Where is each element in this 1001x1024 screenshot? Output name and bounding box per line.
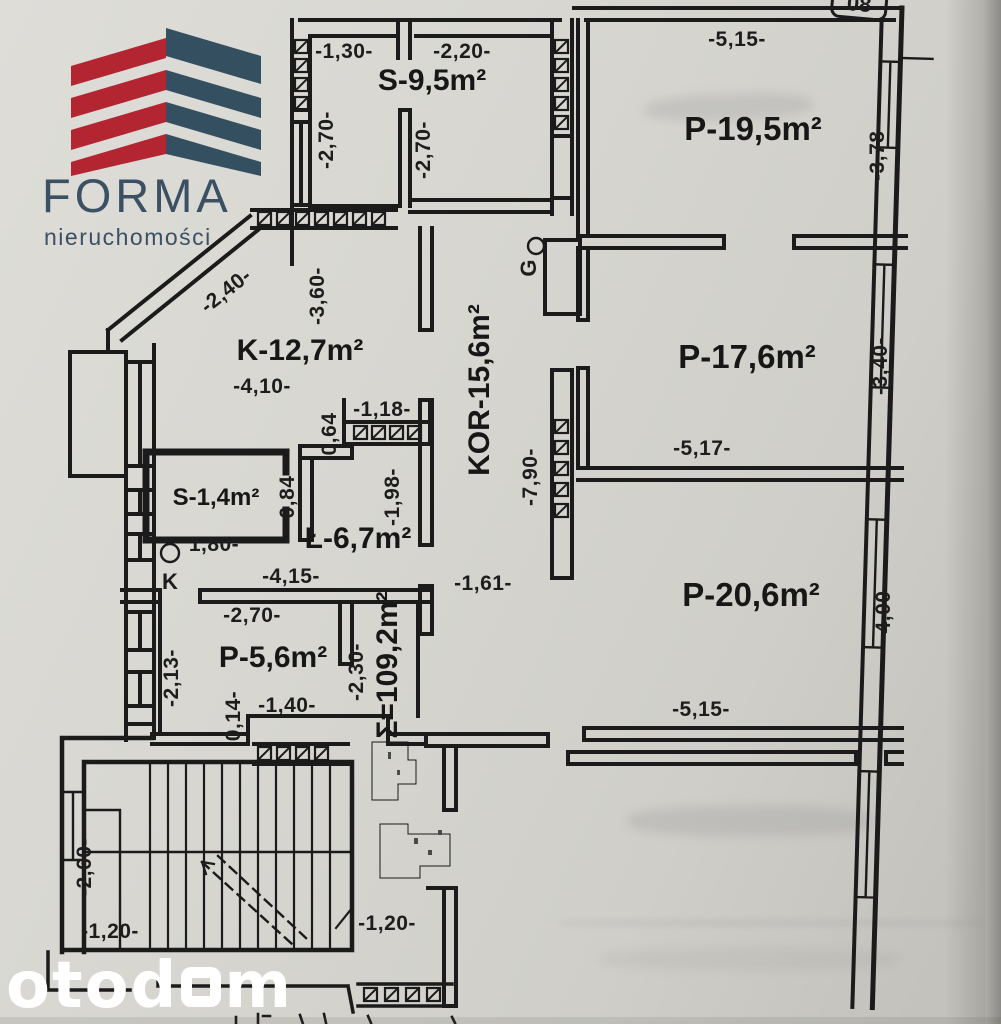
dim-118: -1,18-: [353, 398, 411, 421]
whiteout-patch: [372, 742, 416, 800]
hatch-band-above-stairs: [258, 747, 328, 760]
walls-corridor: [420, 228, 580, 1006]
room-label-p206: P-20,6m²: [682, 576, 820, 613]
room-label-p56: P-5,6m²: [219, 641, 327, 674]
kitchen-letter: K: [162, 569, 178, 594]
stair-direction-arrow: [202, 862, 292, 944]
room-label-p176: P-17,6m²: [678, 338, 816, 375]
dim-415: -4,15-: [262, 565, 320, 588]
dim-213: -2,13-: [160, 649, 183, 707]
hatch-band-entry: [364, 988, 440, 1001]
dim-270a: -2,70-: [315, 111, 338, 169]
kitchen-circle-icon: [161, 544, 179, 562]
page-edge: [985, 0, 1001, 1024]
gas-circle-icon: [528, 238, 544, 254]
hatch-band-s-left: [295, 40, 308, 110]
dim-120b: -1,20-: [358, 912, 416, 935]
dim-400: -4,00-: [872, 583, 895, 641]
dim-161: -1,61-: [454, 572, 512, 595]
dim-180: 1,80-: [189, 533, 239, 556]
dim-270c: -2,70-: [223, 604, 281, 627]
dim-230: -2,30-: [345, 643, 368, 701]
watermark-square-o-icon: [181, 967, 221, 1007]
dim-198: -1,98-: [381, 468, 404, 526]
dim-378: -3,78-: [866, 123, 889, 181]
scanned-floor-plan-page: 08 G K S-9,5m² P-19,5m² K-12,7m² P-17,6m…: [0, 0, 1001, 1024]
dim-120a: -1,20-: [81, 920, 139, 943]
dim-410: -4,10-: [233, 375, 291, 398]
brand-name: FORMA: [42, 168, 232, 223]
dim-515b: -5,15-: [672, 698, 730, 721]
hatch-band-corridor: [555, 420, 568, 517]
corridor-label: KOR-15,6m²: [463, 304, 496, 476]
room-label-k127: K-12,7m²: [237, 334, 364, 367]
walls-p176-p206: [578, 248, 902, 740]
watermark-suffix: m: [224, 949, 293, 1023]
dim-360: -3,60-: [306, 267, 329, 325]
brand-tagline: nieruchomości: [44, 224, 212, 251]
hatch-band-bath-top: [354, 426, 421, 439]
dim-270b: -2,70-: [412, 121, 435, 179]
unit-number: 08: [846, 0, 873, 17]
dim-517: -5,17-: [673, 437, 731, 460]
dim-515a: -5,15-: [708, 28, 766, 51]
forma-building-logo-icon: [36, 26, 296, 176]
gas-letter: G: [516, 259, 541, 276]
dim-064: 0,64: [318, 413, 341, 456]
dim-260: -2,60-: [73, 838, 96, 896]
unit-number-badge: 08: [831, 0, 888, 20]
total-area-label: Σ=109,2m²: [371, 591, 404, 738]
dim-220: -2,20-: [433, 40, 491, 63]
dim-140: -1,40-: [258, 694, 316, 717]
whiteout-patch: [380, 824, 450, 878]
room-label-s14: S-1,4m²: [173, 484, 260, 511]
dim-790: -7,90-: [519, 448, 542, 506]
walls-bottom-right: [568, 752, 902, 764]
room-label-p195: P-19,5m²: [684, 110, 822, 147]
otodom-watermark: otodm: [6, 954, 293, 1018]
hatch-band-p195-left: [555, 40, 568, 129]
bottom-edge-shadow: [0, 1017, 1001, 1024]
watermark-prefix: otod: [6, 949, 178, 1023]
dim-014: 0,14-: [222, 691, 245, 741]
dim-340: -3,40-: [869, 337, 892, 395]
room-label-l67: Ł-6,7m²: [305, 522, 412, 555]
gas-fixture-symbol: G: [516, 238, 544, 277]
dim-130: -1,30-: [315, 40, 373, 63]
room-label-s95: S-9,5m²: [378, 64, 486, 97]
hatch-band-s-bottom: [258, 212, 385, 225]
outer-wall-right: [852, 7, 934, 1008]
page-curl-shadow: [945, 0, 985, 1024]
dim-084: -0,84-: [276, 468, 299, 526]
kitchen-fixture-symbol: K: [161, 544, 179, 594]
